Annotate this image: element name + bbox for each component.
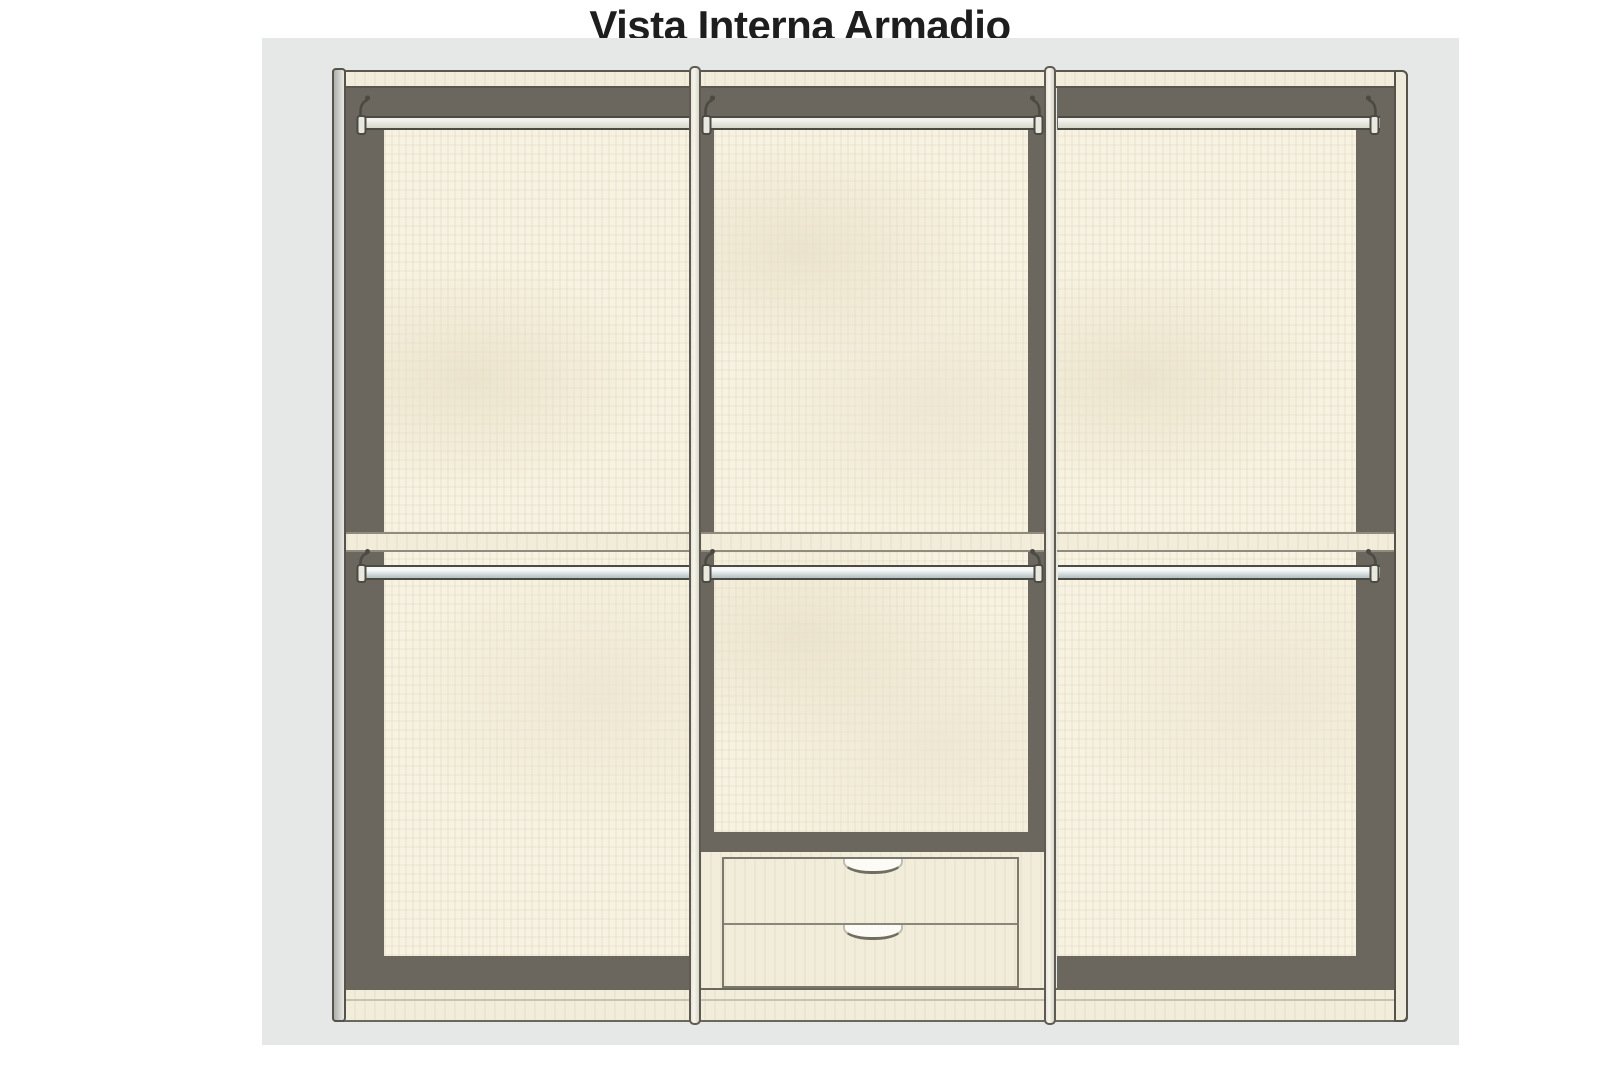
rail-bracket-icon xyxy=(354,94,374,136)
left-top-hanging-rail xyxy=(362,116,690,130)
rail-bracket-icon xyxy=(354,548,374,584)
drawer-front-2 xyxy=(724,925,1017,984)
wardrobe-top-panel xyxy=(332,70,1408,88)
drawer-unit xyxy=(722,857,1019,988)
rail-bracket-icon xyxy=(699,94,719,136)
left-middle-shelf xyxy=(346,532,690,552)
rail-bracket-icon xyxy=(699,548,719,584)
right-lower-hanging-rail xyxy=(1058,565,1380,580)
drawer-handle-recess-icon xyxy=(843,859,903,874)
left-lower-hanging-rail xyxy=(362,565,690,580)
left-side-panel-edge xyxy=(332,68,346,1022)
drawer-handle-recess-icon xyxy=(843,925,903,940)
right-middle-shelf xyxy=(1057,532,1394,552)
right-side-panel-edge xyxy=(1394,70,1408,1022)
center-middle-shelf xyxy=(700,532,1045,552)
drawer-front-1 xyxy=(724,859,1017,925)
rail-bracket-icon xyxy=(1026,548,1046,584)
center-lower-hanging-rail xyxy=(706,565,1038,580)
rail-bracket-icon xyxy=(1026,94,1046,136)
rail-bracket-icon xyxy=(1362,548,1382,584)
vertical-divider-2 xyxy=(1044,66,1056,1025)
base-plinth-seam xyxy=(334,999,1406,1001)
center-lower-back-panel xyxy=(714,551,1028,832)
rail-bracket-icon xyxy=(1362,94,1382,136)
vertical-divider-1 xyxy=(689,66,701,1025)
wardrobe-base-plinth xyxy=(332,988,1408,1022)
center-upper-back-panel xyxy=(714,130,1028,533)
center-top-hanging-rail xyxy=(706,116,1038,130)
right-top-hanging-rail xyxy=(1058,116,1380,130)
